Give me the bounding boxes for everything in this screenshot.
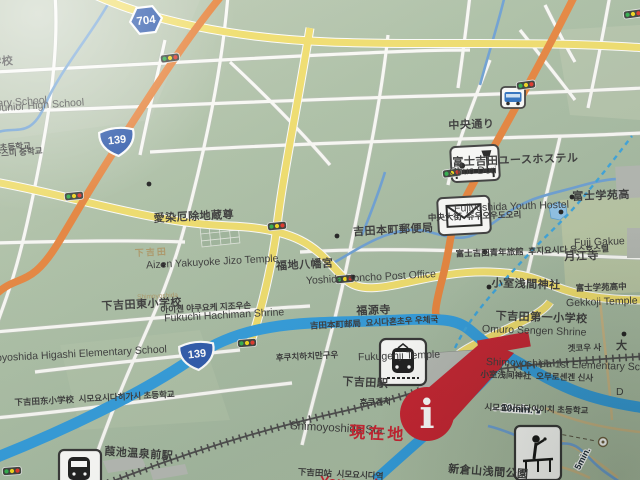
poi-clipped-right-edge: 大 D: [616, 306, 634, 433]
label-jp: 福源寺: [356, 303, 438, 318]
label-en: D: [616, 387, 634, 398]
label-en: tary School: [0, 95, 47, 110]
label-en: Chuo Dori: [408, 164, 538, 180]
label-jp: 吉田本町郵便局: [247, 223, 433, 245]
poi-yoshiikeonsen-mae-station: 葭池温泉前駅 Yoshiikeonsen Mae Sta. 葭池温泉前站 요시이…: [32, 407, 238, 480]
poi-chuo-dori: 中央通り Chuo Dori 中央大街 츄우오우도오리: [405, 83, 541, 258]
area-label-shimoyoshida: 下吉田 Shimoyoshida: [133, 212, 180, 337]
poi-elementary-school-left: tary School 초등학교: [0, 60, 53, 187]
label-en: Shimoyoshida: [137, 292, 178, 301]
tourist-map-sign-photo: i: [0, 0, 640, 480]
label-jp: 富士学苑高: [572, 190, 630, 204]
label-sub: 초등학교: [0, 141, 50, 154]
label-jp: 新倉山浅間公園: [335, 456, 529, 480]
label-jp: 大: [616, 341, 634, 353]
label-sub: 中央大街 츄우오우도오리: [409, 210, 539, 224]
map-labels: 中学校 Junior High School 아스미 중학교 tary Scho…: [0, 0, 640, 480]
label-jp: 葭池温泉前駅: [41, 442, 236, 467]
label-jp: 中央通り: [406, 117, 536, 133]
label-jp: 下吉田: [135, 247, 176, 259]
